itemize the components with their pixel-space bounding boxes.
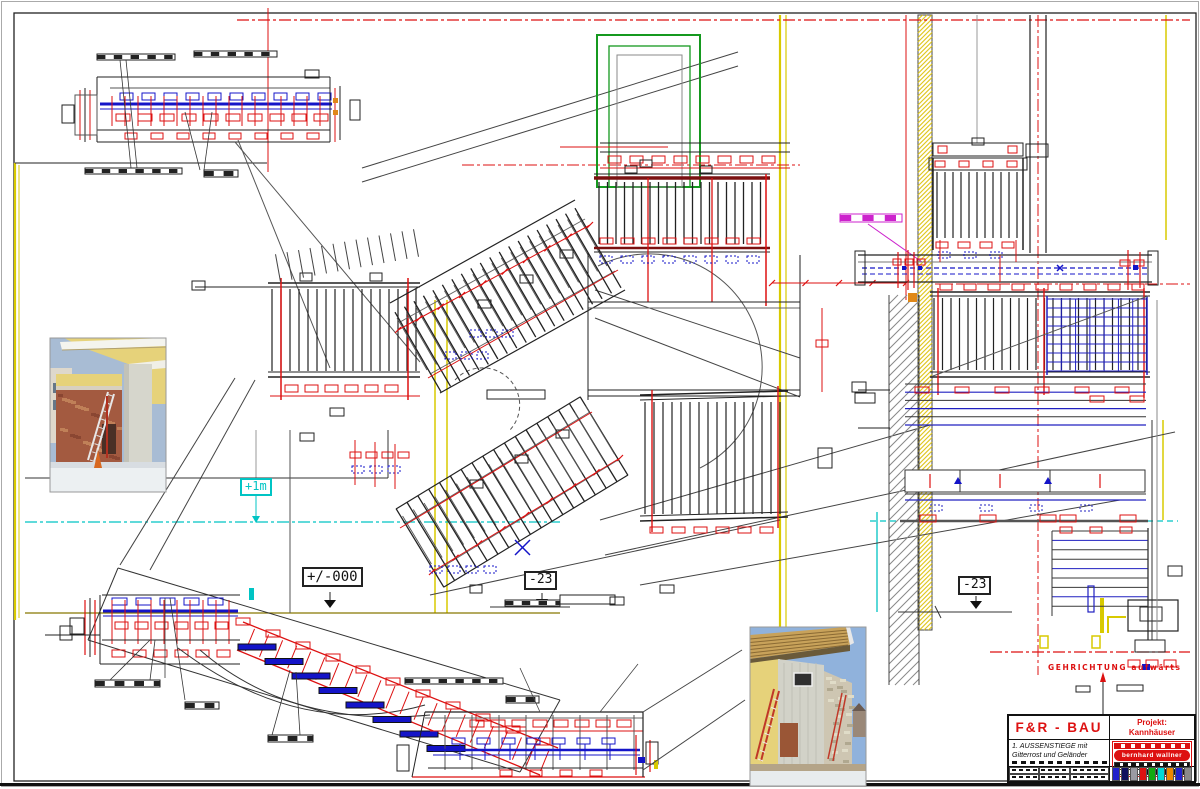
title-block: F&R - BAU Projekt: Kannhäuser 1. AUSSENS…	[1007, 714, 1196, 783]
drawing-title: 1. AUSSENSTIEGE mit Gitterrost und Gelän…	[1009, 740, 1110, 766]
legend-color-1	[1121, 767, 1129, 781]
title-block-company: F&R - BAU	[1009, 716, 1110, 739]
drawing-title-line1: 1. AUSSENSTIEGE mit	[1012, 741, 1107, 750]
project-label: Projekt:	[1137, 718, 1167, 727]
site-photo-2	[750, 627, 866, 786]
border-frame	[0, 2, 1200, 787]
legend-color-6	[1166, 767, 1174, 781]
site-photo-1	[50, 338, 166, 492]
color-legend	[1110, 767, 1194, 781]
section-right	[852, 15, 1182, 692]
logo-oval: bernhard wallner	[1114, 750, 1190, 761]
legend-color-7	[1175, 767, 1183, 781]
legend-color-2	[1130, 767, 1138, 781]
title-divider	[1012, 761, 1107, 764]
project-name: Kannhäuser	[1129, 728, 1175, 737]
drawing-title-line2: Gitterrost und Geländer	[1012, 750, 1107, 759]
revision-table	[1009, 767, 1110, 781]
walking-direction-note: GEHRICHTUNG aufwärts	[1048, 663, 1182, 672]
elevation-label-plus1m: +1m	[240, 478, 272, 496]
legend-color-8	[1184, 767, 1192, 781]
title-block-project: Projekt: Kannhäuser	[1110, 716, 1194, 739]
company-logo: bernhard wallner	[1110, 740, 1194, 766]
logo-top-bar	[1114, 743, 1190, 749]
legend-color-4	[1148, 767, 1156, 781]
beam-detail-top-left	[15, 51, 360, 290]
elevation-label-minus23-right: -23	[958, 576, 991, 595]
elevation-label-minus23-left: -23	[524, 571, 557, 590]
legend-color-3	[1139, 767, 1147, 781]
elevation-label-zero: +/-000	[302, 567, 363, 587]
legend-color-0	[1112, 767, 1120, 781]
drawing-sheet: +1m +/-000 -23 -23 GEHRICHTUNG aufwärts …	[0, 0, 1200, 789]
cad-canvas	[0, 0, 1200, 789]
legend-color-5	[1157, 767, 1165, 781]
